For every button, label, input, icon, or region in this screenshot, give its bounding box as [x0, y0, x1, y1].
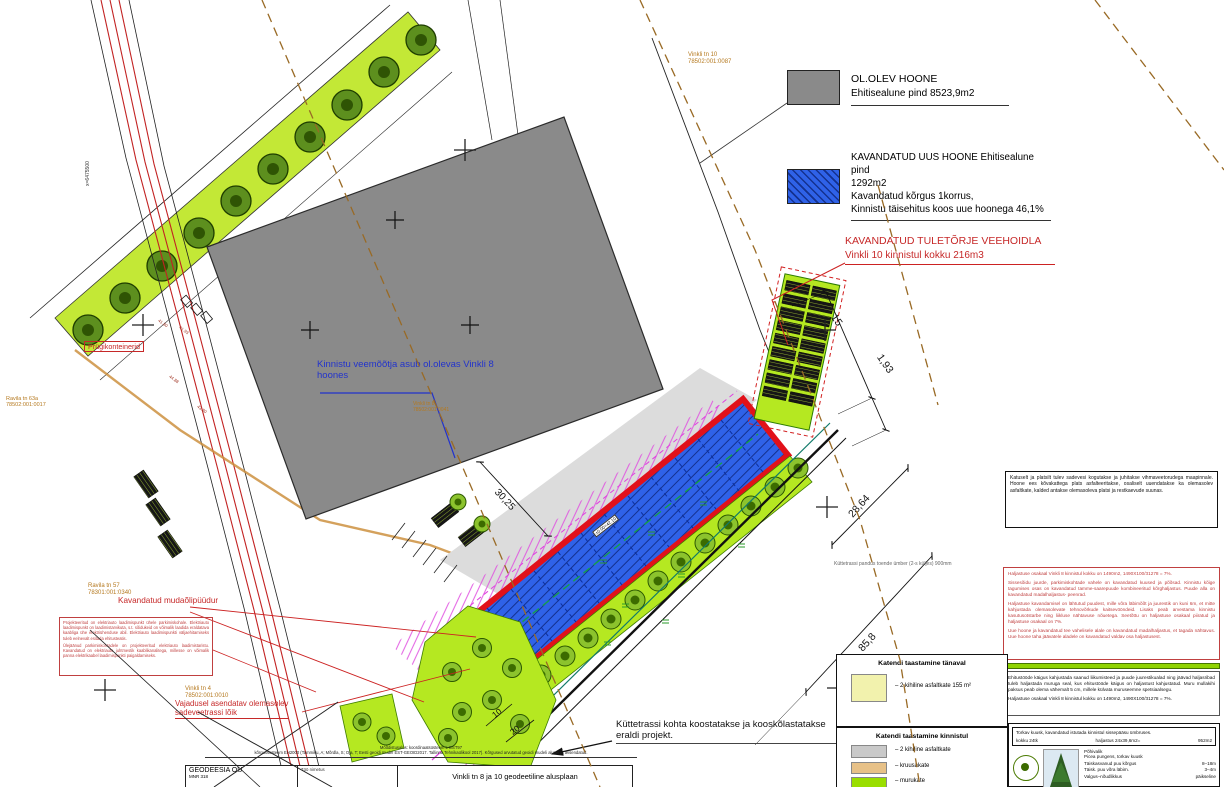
plot-legend-item: – kruusakate [895, 763, 929, 769]
heating-note-line2: eraldi projekt. [616, 730, 826, 741]
fire-note-line1: KAVANDATUD TULETÕRJE VEEHOIDLA [845, 235, 1041, 249]
replace-note-line1: Vajadusel asendatav olemasolev [175, 699, 288, 708]
oil-trap-label: Kavandatud mudaõlipüüdur [118, 596, 218, 606]
heating-small-note: Küttetrassi pandus toende ümber (2-s kül… [834, 562, 952, 568]
tree-spec-box: Torkav kuusk, kavandatud istutada kinnis… [1008, 723, 1220, 787]
firm-reg: MNR 318 [189, 774, 294, 779]
ev-note-p1: Projekteeritud on elektriauto laadimispu… [63, 620, 209, 641]
water-meter-note: Kinnistu veemõõtja asub ol.olevas Vinkli… [317, 359, 525, 381]
pavement-legend-plot: Katendi taastamine kinnistul – 2 kihilin… [836, 727, 1008, 787]
legend-existing-area: Ehitisealune pind 8523,9m2 [851, 87, 1009, 100]
restore-note-box: Ehitustööde käigus kahjustada saanud lii… [1003, 671, 1220, 716]
title-block: GEODEESIA OÜ MNR 318 Töö nimetus Vinkli … [185, 765, 633, 787]
legend-planned: KAVANDATUD UUS HOONE Ehitisealune pind 1… [851, 152, 1051, 221]
heating-note: Küttetrassi kohta koostatakse ja kooskõl… [616, 719, 836, 744]
legend-existing: OL.OLEV HOONE Ehitisealune pind 8523,9m2 [851, 73, 1009, 106]
replace-drain-note: Vajadusel asendatav olemasolev sadeveetr… [175, 699, 288, 719]
landscape-p3: Haljastuse kavandamisel on lähtutud puud… [1008, 601, 1215, 625]
cadastral-vinkli4: Vinkli tn 478502:001:0010 [185, 686, 228, 700]
legend-planned-line4: Kinnistu täisehitus koos uue hoonega 46,… [851, 204, 1051, 217]
tree-header-text: Torkav kuusk, kavandatud istutada kinnis… [1016, 730, 1212, 735]
grass-swatch [851, 777, 887, 787]
legend-planned-line2: 1292m2 [851, 178, 1051, 191]
fire-note-line2: Vinkli 10 kinnistul kokku 216m3 [845, 249, 1041, 262]
titleblock-firm-cell: GEODEESIA OÜ MNR 318 [186, 766, 298, 787]
existing-building-swatch [787, 70, 840, 105]
coordinate-label: x=6475500 [86, 161, 92, 186]
tree-area-formula: haljastus 24x39,6m2= [1096, 738, 1141, 743]
waste-container-label: Prügikonteinerid [84, 336, 144, 355]
fire-reservoir [748, 267, 846, 437]
tree-count: kokku 24tk [1016, 738, 1038, 743]
restore-p2: Haljastuse osakaal Vinkli 8 kinnistul ko… [1008, 696, 1215, 702]
titleblock-label-cell: Töö nimetus [298, 766, 398, 787]
green-divider-bar [1003, 663, 1220, 669]
landscape-p2: Sissesõidu juurde, parkimiskohtade vahel… [1008, 580, 1215, 598]
gravel-swatch [851, 762, 887, 774]
tree-area-value: 952m2 [1198, 738, 1212, 743]
tree-spec-header: Torkav kuusk, kavandatud istutada kinnis… [1012, 727, 1216, 746]
legend-existing-title: OL.OLEV HOONE [851, 73, 1009, 87]
drainage-note-text: Katuselt ja platsilt tulev sadevesi kogu… [1010, 475, 1213, 494]
ev-charging-note: Projekteeritud on elektriauto laadimispu… [59, 617, 213, 676]
firm-name: GEODEESIA OÜ [189, 767, 294, 774]
fire-reservoir-note: KAVANDATUD TULETÕRJE VEEHOIDLA Vinkli 10… [845, 235, 1055, 265]
plot-legend-item: – 2 kihiline asfaltkate [895, 747, 951, 753]
legend-planned-line1: KAVANDATUD UUS HOONE Ehitisealune pind [851, 152, 1051, 178]
landscape-p4: Uue hoone ja kavandatud tee vahelisele a… [1008, 628, 1215, 640]
plot-legend-title: Katendi taastamine kinnistul [837, 733, 1007, 740]
tree-symbol-icon [1013, 755, 1039, 781]
planned-building-swatch [787, 169, 840, 204]
cadastral-vinkli10: Vinkli tn 1078502:001:0087 [688, 52, 731, 66]
street-legend-title: Katendi taastamine tänaval [837, 660, 1007, 667]
tree-photo [1043, 749, 1079, 787]
landscape-note-box: Haljastuse osakaal Vinkli 8 kinnistul ko… [1003, 567, 1220, 660]
plot-legend-item: – murukate [895, 778, 925, 784]
heating-note-line1: Küttetrassi kohta koostatakse ja kooskõl… [616, 719, 826, 730]
legend-planned-line3: Kavandatud kõrgus 1korrus, [851, 191, 1051, 204]
cadastral-vinkli8: Vinkli tn 878502:001:0041 [413, 402, 449, 414]
tree-spec-list: Põhivalik Picea pungens, torkav kuusk Tä… [1084, 749, 1216, 787]
drainage-note-box: Katuselt ja platsilt tulev sadevesi kogu… [1005, 471, 1218, 528]
titleblock-microtext: Mõõdistusalus: koordinaatsüsteem L-EST97… [205, 745, 637, 758]
restore-p1: Ehitustööde käigus kahjustada saanud lii… [1008, 675, 1215, 693]
landscape-p1: Haljastuse osakaal Vinkli 8 kinnistul ko… [1008, 571, 1215, 577]
asphalt-street-swatch [851, 674, 887, 702]
survey-basis-line2: kõrgussüsteem EH2000 (Tammiku, A; Mõrdla… [205, 750, 637, 755]
ev-note-p2: Ülejäänud parkimiskohtadele on projektee… [63, 643, 209, 659]
asphalt-plot-swatch [851, 745, 887, 758]
replace-note-line2: sadeveetrassi lõik [175, 708, 288, 717]
pavement-legend-street: Katendi taastamine tänaval – 2 kihiline … [836, 654, 1008, 727]
site-plan-sheet: OL.OLEV HOONE Ehitisealune pind 8523,9m2… [0, 0, 1224, 787]
cadastral-ravila63a: Ravila tn 63a78502:001:0017 [6, 396, 46, 409]
street-legend-item: – 2 kihiline asfaltkate 155 m² [895, 683, 971, 689]
drawing-title: Vinkli tn 8 ja 10 geodeetiline alusplaan [398, 766, 632, 787]
cadastral-ravila57: Ravila tn 5778301:001:0340 [88, 583, 131, 597]
